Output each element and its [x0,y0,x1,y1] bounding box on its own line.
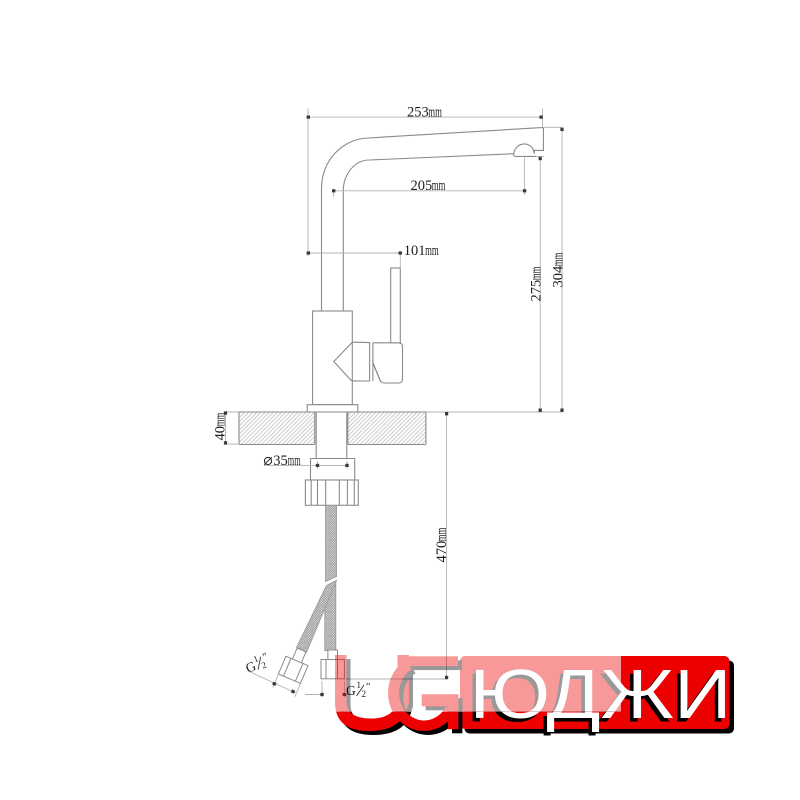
svg-text:mm: mm [432,178,446,194]
svg-text:35: 35 [273,453,288,469]
svg-text:253: 253 [407,105,429,121]
svg-text:mm: mm [529,266,545,280]
svg-text:101: 101 [404,243,426,259]
svg-text:mm: mm [213,412,229,426]
svg-text:1: 1 [357,680,362,690]
svg-text:470: 470 [434,541,450,563]
svg-text:mm: mm [428,105,442,121]
svg-text:″: ″ [366,681,371,693]
svg-text:40: 40 [213,426,229,441]
svg-text:mm: mm [551,252,567,266]
svg-text:304: 304 [551,265,567,288]
svg-text:mm: mm [425,243,439,259]
svg-text:mm: mm [434,527,450,541]
svg-text:205: 205 [411,178,433,194]
svg-text:275: 275 [529,280,545,302]
svg-text:mm: mm [288,453,301,469]
